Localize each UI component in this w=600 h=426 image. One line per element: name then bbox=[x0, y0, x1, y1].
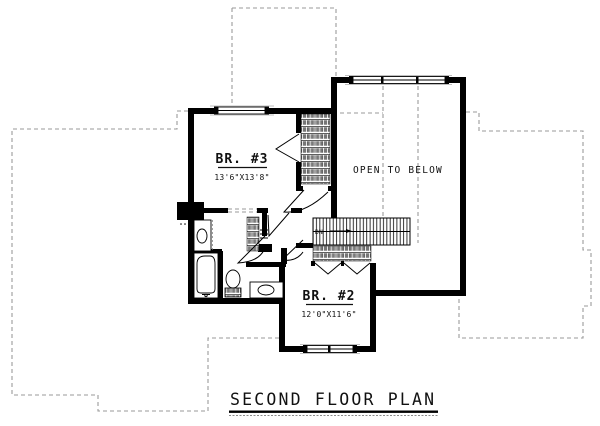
floor-plan-drawing: DN bbox=[0, 0, 600, 426]
room-dims-br3: 13'6"X13'8" bbox=[214, 173, 269, 182]
bifold-door-right bbox=[344, 263, 370, 274]
window-open-below bbox=[345, 76, 452, 85]
door-closet-br3 bbox=[276, 134, 299, 162]
vanity-sink-bottom bbox=[250, 282, 283, 298]
window-br2 bbox=[300, 345, 360, 354]
bathtub bbox=[194, 253, 218, 298]
under-stair-closet-hatch bbox=[313, 246, 371, 261]
window-br3 bbox=[210, 106, 274, 115]
dn-label: DN bbox=[315, 228, 323, 236]
closet-br3-hatch bbox=[301, 114, 330, 184]
title-underline-thick bbox=[229, 411, 438, 413]
plan-title-block: SECOND FLOOR PLAN bbox=[229, 390, 438, 416]
wall-open-below-bottom bbox=[372, 290, 466, 296]
wall-open-below-left bbox=[331, 77, 337, 218]
toilet bbox=[225, 270, 241, 297]
room-dims-br2: 12'0"X11'6" bbox=[301, 310, 356, 319]
wall-br2-left bbox=[279, 263, 285, 352]
wall-bath-bottom bbox=[188, 298, 285, 304]
room-label-br3: BR. #3 bbox=[216, 152, 269, 167]
bath-fixtures bbox=[194, 220, 283, 298]
plan-title: SECOND FLOOR PLAN bbox=[230, 390, 436, 409]
stairs: DN bbox=[313, 218, 410, 245]
linen-closet-hatch bbox=[247, 217, 259, 251]
chimney-block bbox=[177, 202, 204, 220]
wall-hall-south bbox=[246, 262, 286, 267]
door-br3-entry bbox=[268, 213, 289, 236]
wall-br2-right bbox=[370, 263, 376, 352]
bath-cased-opening bbox=[228, 209, 257, 212]
vanity-sink-top bbox=[194, 220, 213, 251]
room-label-br2: BR. #2 bbox=[303, 289, 356, 304]
label-open-to-below: OPEN TO BELOW bbox=[353, 165, 443, 176]
floor-plan-page: DN bbox=[0, 0, 600, 426]
wall-open-below-right bbox=[460, 77, 466, 296]
door-hall-closet bbox=[284, 190, 328, 212]
bifold-door-left bbox=[315, 263, 341, 274]
